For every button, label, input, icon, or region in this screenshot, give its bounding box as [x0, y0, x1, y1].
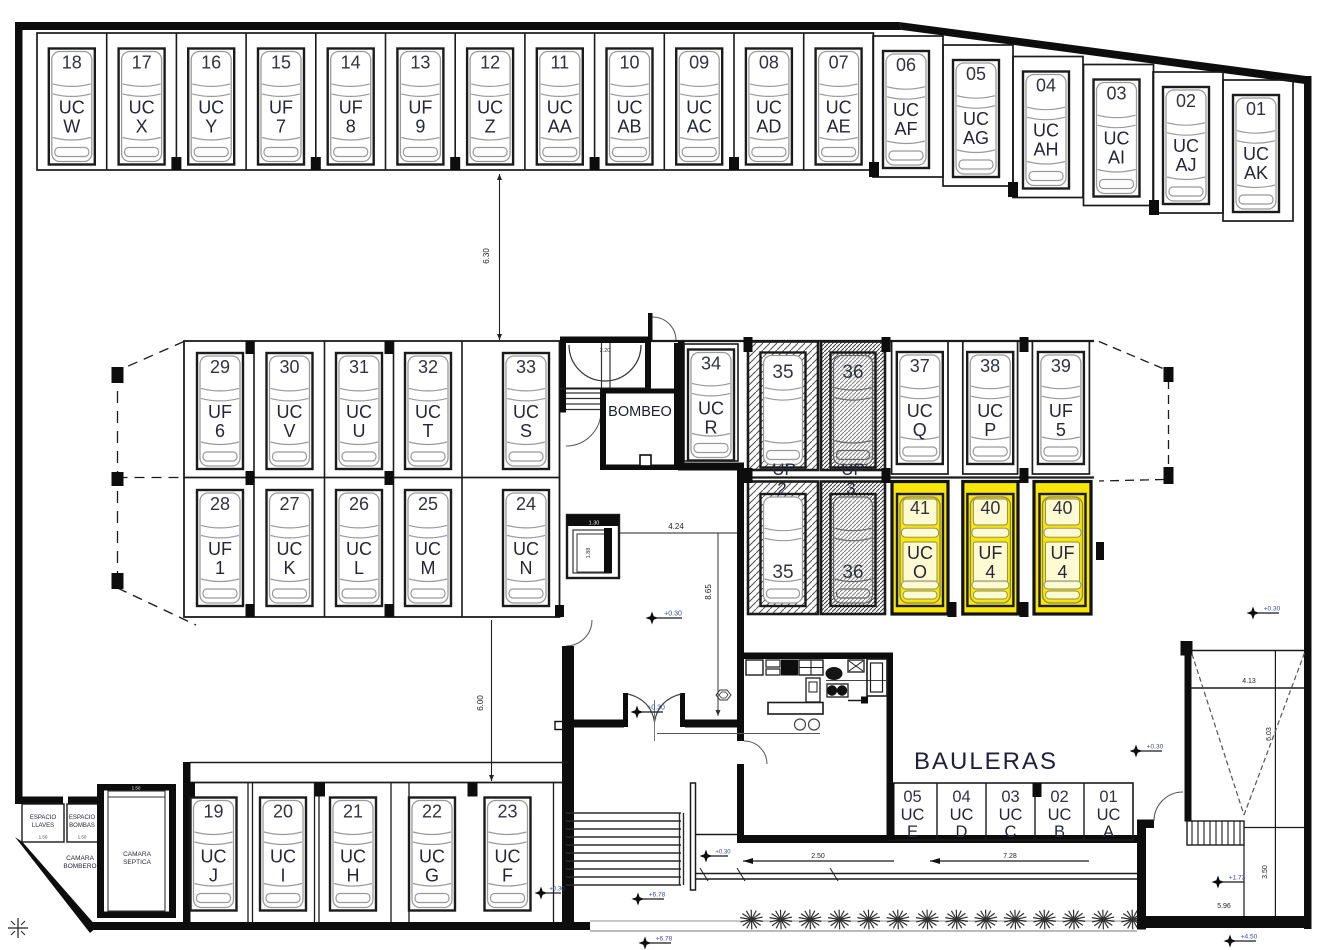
- svg-text:BAULERAS: BAULERAS: [914, 748, 1058, 775]
- svg-text:31: 31: [349, 357, 369, 377]
- svg-text:UC: UC: [1048, 806, 1072, 824]
- svg-text:K: K: [283, 558, 295, 578]
- svg-text:+0.30: +0.30: [715, 850, 731, 856]
- svg-text:AE: AE: [827, 117, 851, 137]
- svg-text:03: 03: [1106, 84, 1126, 104]
- svg-text:+1.73: +1.73: [1229, 875, 1246, 882]
- svg-text:38: 38: [980, 356, 1000, 376]
- svg-text:18: 18: [62, 53, 82, 73]
- svg-text:UC: UC: [950, 806, 974, 824]
- svg-text:UC: UC: [826, 98, 852, 118]
- svg-text:6: 6: [215, 421, 225, 441]
- svg-text:10: 10: [619, 53, 639, 73]
- svg-text:G: G: [425, 866, 439, 886]
- svg-text:V: V: [283, 421, 295, 441]
- svg-text:1.50: 1.50: [78, 835, 87, 840]
- svg-text:36: 36: [842, 362, 863, 383]
- svg-text:BOMBAS: BOMBAS: [69, 823, 95, 829]
- svg-text:AG: AG: [963, 128, 989, 148]
- svg-text:03: 03: [1001, 788, 1019, 806]
- svg-text:2: 2: [777, 479, 786, 498]
- svg-text:ESPACIO: ESPACIO: [69, 815, 96, 821]
- svg-text:U: U: [353, 421, 366, 441]
- svg-text:14: 14: [341, 53, 361, 73]
- svg-text:F: F: [502, 866, 513, 886]
- svg-text:11: 11: [550, 53, 569, 73]
- svg-text:25: 25: [418, 494, 438, 514]
- svg-text:AH: AH: [1033, 140, 1058, 160]
- svg-text:UF: UF: [1051, 543, 1075, 563]
- svg-text:M: M: [421, 558, 436, 578]
- svg-text:AF: AF: [894, 119, 917, 139]
- svg-text:LLAVES: LLAVES: [32, 823, 54, 829]
- svg-text:UC: UC: [129, 98, 155, 118]
- svg-text:CAMARA: CAMARA: [66, 855, 94, 862]
- svg-text:AJ: AJ: [1175, 155, 1196, 175]
- svg-text:+0.30: +0.30: [1264, 606, 1281, 613]
- svg-text:6.00: 6.00: [476, 695, 485, 711]
- svg-text:6.03: 6.03: [1266, 727, 1273, 741]
- svg-text:UC: UC: [340, 847, 366, 867]
- svg-text:1.50: 1.50: [132, 786, 141, 791]
- svg-text:D: D: [956, 823, 968, 841]
- svg-text:R: R: [705, 418, 718, 438]
- svg-text:35: 35: [772, 362, 793, 383]
- svg-text:CAMARA: CAMARA: [123, 851, 151, 858]
- svg-text:UC: UC: [1173, 136, 1199, 156]
- svg-text:H: H: [347, 866, 360, 886]
- svg-text:37: 37: [910, 356, 930, 376]
- svg-text:UC: UC: [415, 539, 441, 559]
- svg-text:01: 01: [1099, 788, 1117, 806]
- svg-text:UC: UC: [907, 401, 933, 421]
- svg-text:UC: UC: [907, 543, 933, 563]
- svg-text:04: 04: [952, 788, 970, 806]
- svg-text:3.50: 3.50: [1262, 865, 1269, 879]
- svg-text:P: P: [984, 420, 996, 440]
- svg-text:19: 19: [203, 802, 223, 822]
- svg-text:BOMBEO: BOMBEO: [608, 404, 672, 420]
- svg-text:AD: AD: [756, 117, 781, 137]
- svg-text:C: C: [1005, 823, 1017, 841]
- svg-text:34: 34: [701, 354, 721, 374]
- svg-text:21: 21: [343, 802, 363, 822]
- svg-text:J: J: [209, 866, 218, 886]
- svg-text:41: 41: [910, 498, 930, 518]
- svg-text:02: 02: [1050, 788, 1068, 806]
- svg-text:N: N: [520, 558, 533, 578]
- svg-text:15: 15: [271, 53, 291, 73]
- svg-text:27: 27: [279, 494, 299, 514]
- svg-text:02: 02: [1176, 91, 1196, 111]
- svg-text:L: L: [354, 558, 364, 578]
- svg-text:BOMBERO: BOMBERO: [63, 863, 96, 870]
- svg-text:+6.78: +6.78: [656, 936, 673, 943]
- svg-text:UF: UF: [339, 98, 363, 118]
- svg-text:UC: UC: [1097, 806, 1121, 824]
- svg-text:17: 17: [132, 53, 152, 73]
- svg-text:UC: UC: [901, 806, 925, 824]
- svg-text:22: 22: [422, 802, 442, 822]
- svg-text:32: 32: [418, 357, 438, 377]
- svg-text:UC: UC: [277, 402, 303, 422]
- svg-text:S: S: [520, 421, 532, 441]
- svg-text:+0.30: +0.30: [549, 887, 565, 893]
- svg-text:UC: UC: [346, 402, 372, 422]
- svg-text:9: 9: [415, 117, 425, 137]
- svg-text:UC: UC: [686, 98, 712, 118]
- svg-text:UC: UC: [513, 539, 539, 559]
- svg-text:UF: UF: [208, 539, 232, 559]
- svg-text:1.88: 1.88: [586, 548, 592, 559]
- svg-text:UF: UF: [1049, 401, 1073, 421]
- svg-text:Y: Y: [205, 117, 217, 137]
- svg-text:UC: UC: [415, 402, 441, 422]
- svg-text:33: 33: [516, 357, 536, 377]
- svg-text:UC: UC: [756, 98, 782, 118]
- svg-text:1: 1: [215, 558, 225, 578]
- svg-text:UF: UF: [208, 402, 232, 422]
- svg-text:UC: UC: [495, 847, 521, 867]
- svg-text:SEPTICA: SEPTICA: [123, 859, 151, 866]
- svg-text:UC: UC: [617, 98, 643, 118]
- svg-text:23: 23: [497, 802, 517, 822]
- svg-text:UC: UC: [477, 98, 503, 118]
- svg-text:UP: UP: [841, 460, 865, 479]
- svg-text:X: X: [136, 117, 148, 137]
- svg-text:3: 3: [846, 479, 855, 498]
- svg-text:UC: UC: [198, 98, 224, 118]
- svg-text:AK: AK: [1244, 163, 1268, 183]
- svg-text:UC: UC: [698, 399, 724, 419]
- svg-text:40: 40: [980, 498, 1000, 518]
- svg-text:UC: UC: [346, 539, 372, 559]
- svg-text:36: 36: [842, 562, 863, 583]
- svg-text:08: 08: [759, 53, 779, 73]
- svg-text:5: 5: [1056, 420, 1066, 440]
- svg-text:UC: UC: [1243, 144, 1269, 164]
- svg-text:AB: AB: [617, 117, 641, 137]
- svg-text:Z: Z: [485, 117, 496, 137]
- svg-text:40: 40: [1052, 498, 1072, 518]
- svg-text:5.96: 5.96: [1217, 903, 1231, 910]
- svg-text:UC: UC: [59, 98, 85, 118]
- svg-text:06: 06: [896, 55, 916, 75]
- svg-text:04: 04: [1036, 76, 1056, 96]
- svg-text:I: I: [280, 866, 285, 886]
- svg-text:+0.30: +0.30: [1147, 744, 1164, 751]
- svg-text:4: 4: [985, 562, 995, 582]
- svg-text:05: 05: [966, 64, 986, 84]
- svg-text:39: 39: [1051, 356, 1071, 376]
- svg-text:4.24: 4.24: [668, 522, 684, 531]
- svg-text:29: 29: [210, 357, 230, 377]
- svg-text:UC: UC: [513, 402, 539, 422]
- svg-text:A: A: [1103, 823, 1114, 841]
- svg-text:+6.78: +6.78: [649, 892, 666, 899]
- svg-text:7: 7: [276, 117, 286, 137]
- svg-text:UC: UC: [277, 539, 303, 559]
- svg-text:UC: UC: [999, 806, 1023, 824]
- svg-text:35: 35: [772, 562, 793, 583]
- svg-text:UP: UP: [772, 460, 796, 479]
- svg-text:Q: Q: [913, 420, 927, 440]
- svg-text:07: 07: [829, 53, 849, 73]
- svg-text:UC: UC: [270, 847, 296, 867]
- svg-text:AA: AA: [548, 117, 572, 137]
- svg-text:2.50: 2.50: [811, 853, 825, 860]
- svg-text:2.20: 2.20: [600, 348, 611, 354]
- svg-text:09: 09: [689, 53, 709, 73]
- svg-text:UC: UC: [201, 847, 227, 867]
- svg-text:AI: AI: [1108, 148, 1125, 168]
- svg-text:+4.50: +4.50: [1241, 934, 1258, 941]
- svg-text:T: T: [423, 421, 434, 441]
- svg-text:05: 05: [903, 788, 921, 806]
- svg-text:B: B: [1054, 823, 1065, 841]
- svg-text:UC: UC: [963, 109, 989, 129]
- svg-text:UC: UC: [977, 401, 1003, 421]
- svg-text:13: 13: [410, 53, 430, 73]
- svg-text:7.28: 7.28: [1003, 853, 1017, 860]
- svg-text:6.30: 6.30: [482, 248, 491, 264]
- svg-text:4.13: 4.13: [1242, 678, 1256, 685]
- svg-text:+0.30: +0.30: [664, 611, 682, 618]
- svg-text:28: 28: [210, 494, 230, 514]
- svg-text:1.30: 1.30: [589, 521, 600, 527]
- svg-text:UC: UC: [419, 847, 445, 867]
- svg-text:01: 01: [1246, 99, 1266, 119]
- svg-text:8: 8: [346, 117, 356, 137]
- svg-text:16: 16: [201, 53, 221, 73]
- svg-text:E: E: [907, 823, 918, 841]
- svg-text:30: 30: [279, 357, 299, 377]
- svg-text:AC: AC: [687, 117, 712, 137]
- svg-text:UF: UF: [269, 98, 293, 118]
- svg-text:+0.30: +0.30: [647, 705, 665, 712]
- svg-text:W: W: [63, 117, 80, 137]
- svg-text:UF: UF: [978, 543, 1002, 563]
- svg-text:1.50: 1.50: [39, 835, 48, 840]
- svg-text:ESPACIO: ESPACIO: [30, 815, 57, 821]
- svg-text:UC: UC: [547, 98, 573, 118]
- svg-text:8.65: 8.65: [704, 584, 713, 600]
- svg-text:UC: UC: [1104, 129, 1130, 149]
- svg-text:O: O: [913, 562, 927, 582]
- svg-text:12: 12: [480, 53, 500, 73]
- svg-text:UC: UC: [893, 100, 919, 120]
- svg-text:UC: UC: [1033, 121, 1059, 141]
- svg-text:20: 20: [273, 802, 293, 822]
- svg-text:UF: UF: [408, 98, 432, 118]
- svg-text:24: 24: [516, 494, 536, 514]
- svg-text:26: 26: [349, 494, 369, 514]
- svg-text:4: 4: [1057, 562, 1067, 582]
